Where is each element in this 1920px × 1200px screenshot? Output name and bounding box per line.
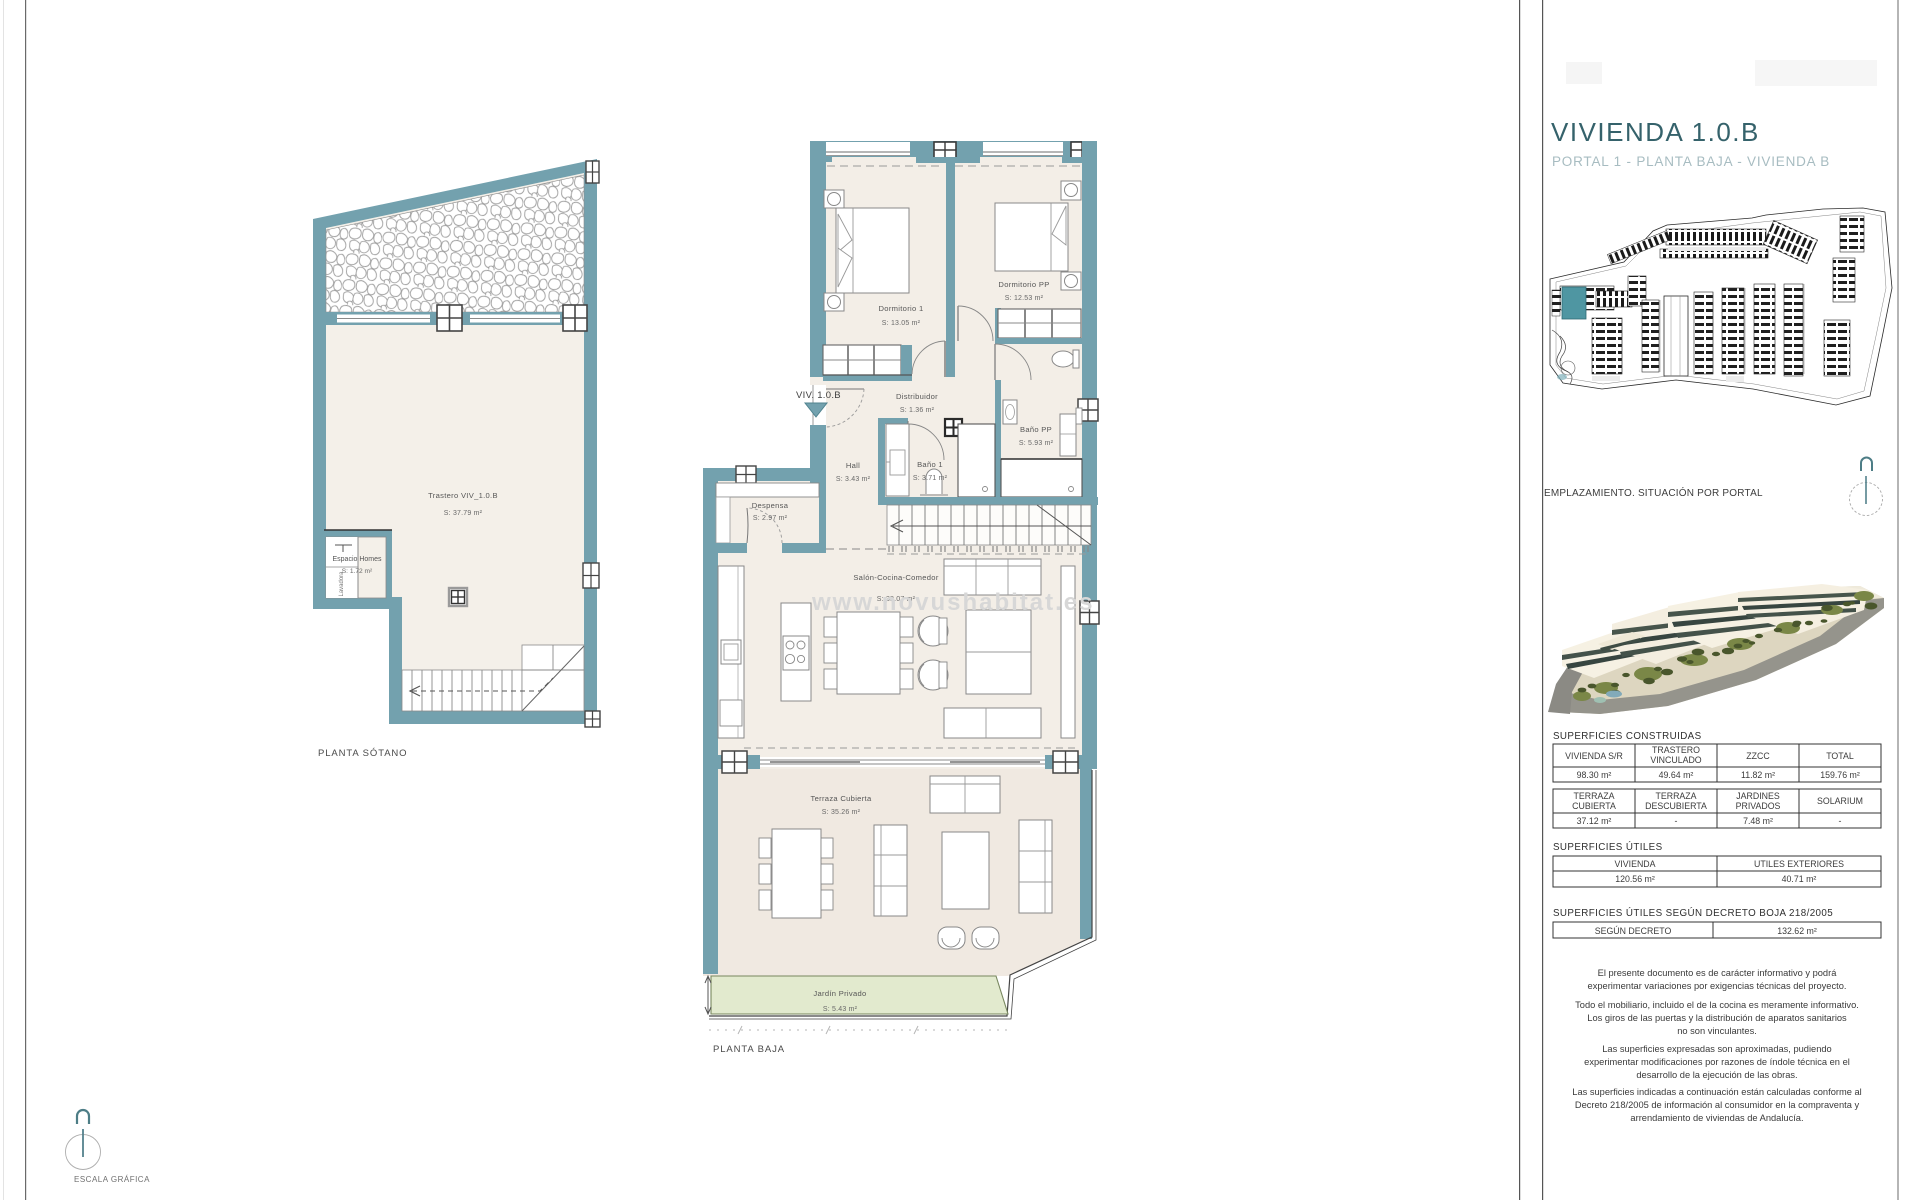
svg-text:49.64 m²: 49.64 m² bbox=[1659, 770, 1694, 780]
svg-text:S: 35.26 m²: S: 35.26 m² bbox=[822, 809, 861, 816]
svg-text:SUPERFICIES CONSTRUIDAS: SUPERFICIES CONSTRUIDAS bbox=[1553, 731, 1702, 742]
svg-text:120.56 m²: 120.56 m² bbox=[1615, 874, 1655, 884]
svg-text:S: 13.05 m²: S: 13.05 m² bbox=[882, 320, 921, 327]
svg-text:Baño 1: Baño 1 bbox=[917, 460, 943, 469]
svg-text:UTILES EXTERIORES: UTILES EXTERIORES bbox=[1754, 859, 1844, 869]
svg-text:Lavadora: Lavadora bbox=[339, 571, 345, 597]
svg-text:37.12 m²: 37.12 m² bbox=[1577, 816, 1612, 826]
svg-text:S: 5.93 m²: S: 5.93 m² bbox=[1019, 440, 1054, 447]
svg-text:PLANTA BAJA: PLANTA BAJA bbox=[713, 1044, 785, 1055]
svg-text:El presente documento es de ca: El presente documento es de carácter inf… bbox=[1598, 968, 1838, 978]
svg-text:40.71 m²: 40.71 m² bbox=[1782, 874, 1817, 884]
svg-text:Baño PP: Baño PP bbox=[1020, 425, 1052, 434]
svg-text:S: 1.36 m²: S: 1.36 m² bbox=[900, 407, 935, 414]
svg-text:Despensa: Despensa bbox=[752, 501, 789, 510]
svg-text:experimentar variaciones por e: experimentar variaciones por exigencias … bbox=[1588, 981, 1847, 991]
svg-text:Jardín Privado: Jardín Privado bbox=[813, 989, 866, 998]
svg-text:7.48 m²: 7.48 m² bbox=[1743, 816, 1773, 826]
svg-text:SUPERFICIES ÚTILES SEGÚN DECRE: SUPERFICIES ÚTILES SEGÚN DECRETO BOJA 21… bbox=[1553, 908, 1833, 919]
svg-text:SEGÚN DECRETO: SEGÚN DECRETO bbox=[1595, 926, 1672, 936]
svg-text:VIVIENDA 1.0.B: VIVIENDA 1.0.B bbox=[1551, 117, 1760, 147]
svg-text:S: 3.43 m²: S: 3.43 m² bbox=[836, 476, 871, 483]
svg-text:Dormitorio PP: Dormitorio PP bbox=[998, 280, 1049, 289]
svg-text:ESCALA GRÁFICA: ESCALA GRÁFICA bbox=[74, 1175, 150, 1184]
svg-text:S: 3.71 m²: S: 3.71 m² bbox=[913, 475, 948, 482]
svg-text:132.62 m²: 132.62 m² bbox=[1777, 926, 1817, 936]
svg-text:desarrollo de la ejecución de: desarrollo de la ejecución de las obras. bbox=[1636, 1070, 1797, 1080]
svg-text:VIVIENDA S/R: VIVIENDA S/R bbox=[1565, 751, 1623, 761]
svg-text:SUPERFICIES ÚTILES: SUPERFICIES ÚTILES bbox=[1553, 842, 1663, 853]
svg-text:ZZCC: ZZCC bbox=[1746, 751, 1770, 761]
svg-text:TOTAL: TOTAL bbox=[1826, 751, 1854, 761]
svg-text:S: 37.79 m²: S: 37.79 m² bbox=[444, 510, 483, 517]
svg-text:Las superficies indicadas a co: Las superficies indicadas a continuación… bbox=[1572, 1087, 1861, 1097]
svg-text:EMPLAZAMIENTO. SITUACIÓN POR P: EMPLAZAMIENTO. SITUACIÓN POR PORTAL bbox=[1544, 486, 1763, 499]
svg-text:PRIVADOS: PRIVADOS bbox=[1736, 801, 1781, 811]
svg-text:experimentar modificaciones po: experimentar modificaciones por razones … bbox=[1584, 1057, 1850, 1067]
svg-text:arrendamiento de viviendas de: arrendamiento de viviendas de Andalucía. bbox=[1630, 1113, 1803, 1123]
svg-text:S: 2.97 m²: S: 2.97 m² bbox=[753, 515, 788, 522]
svg-text:JARDINES: JARDINES bbox=[1736, 791, 1780, 801]
svg-text:TERRAZA: TERRAZA bbox=[1655, 791, 1696, 801]
svg-text:Distribuidor: Distribuidor bbox=[896, 392, 938, 401]
svg-text:CUBIERTA: CUBIERTA bbox=[1572, 801, 1616, 811]
svg-text:VIV. 1.0.B: VIV. 1.0.B bbox=[796, 390, 841, 401]
svg-text:TERRAZA: TERRAZA bbox=[1573, 791, 1614, 801]
svg-text:Las superficies expresadas son: Las superficies expresadas son aproximad… bbox=[1602, 1044, 1831, 1054]
svg-text:PORTAL 1 - PLANTA BAJA - VIVIE: PORTAL 1 - PLANTA BAJA - VIVIENDA B bbox=[1552, 154, 1830, 169]
svg-text:Todo el mobiliario, incluido e: Todo el mobiliario, incluido el de la co… bbox=[1575, 1000, 1859, 1010]
svg-text:98.30 m²: 98.30 m² bbox=[1577, 770, 1612, 780]
svg-text:TRASTERO: TRASTERO bbox=[1652, 745, 1700, 755]
svg-text:no son vinculantes.: no son vinculantes. bbox=[1677, 1026, 1757, 1036]
svg-text:Decreto 218/2005 de informaci: Decreto 218/2005 de información al consu… bbox=[1575, 1100, 1860, 1110]
svg-text:-: - bbox=[1839, 816, 1842, 826]
svg-text:S: 12.53 m²: S: 12.53 m² bbox=[1005, 295, 1044, 302]
svg-text:VINCULADO: VINCULADO bbox=[1650, 755, 1701, 765]
svg-text:Los giros de las puertas y la: Los giros de las puertas y la distribuci… bbox=[1587, 1013, 1847, 1023]
svg-text:Hall: Hall bbox=[846, 461, 860, 470]
svg-text:S: 5.43 m²: S: 5.43 m² bbox=[823, 1006, 858, 1013]
svg-text:PLANTA SÓTANO: PLANTA SÓTANO bbox=[318, 748, 407, 759]
svg-text:VIVIENDA: VIVIENDA bbox=[1614, 859, 1655, 869]
svg-text:DESCUBIERTA: DESCUBIERTA bbox=[1645, 801, 1707, 811]
svg-text:Espacio Homes: Espacio Homes bbox=[332, 556, 382, 563]
svg-text:Trastero VIV_1.0.B: Trastero VIV_1.0.B bbox=[428, 491, 498, 500]
svg-text:Dormitorio 1: Dormitorio 1 bbox=[879, 304, 924, 313]
svg-text:S: 1.72 m²: S: 1.72 m² bbox=[342, 568, 373, 575]
svg-text:159.76 m²: 159.76 m² bbox=[1820, 770, 1860, 780]
svg-text:11.82 m²: 11.82 m² bbox=[1741, 770, 1775, 780]
svg-text:www.novushabitat.es: www.novushabitat.es bbox=[811, 589, 1095, 616]
svg-text:SOLARIUM: SOLARIUM bbox=[1817, 796, 1863, 806]
svg-text:-: - bbox=[1675, 816, 1678, 826]
svg-text:Salón-Cocina-Comedor: Salón-Cocina-Comedor bbox=[853, 573, 939, 582]
svg-text:Terraza Cubierta: Terraza Cubierta bbox=[811, 794, 872, 803]
